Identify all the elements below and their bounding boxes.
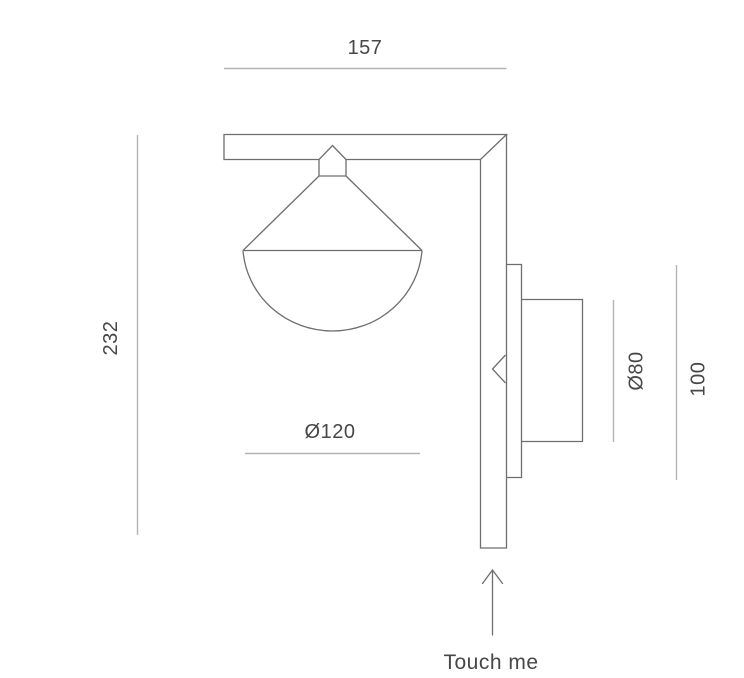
touch-arrow-shaft-and-head [483, 570, 503, 635]
touch-sensor-chevron [493, 355, 506, 383]
lamp-outline [224, 135, 583, 549]
technical-drawing-page: 157 232 Ø120 Ø80 100 Touch me [0, 0, 744, 678]
touch-arrow [483, 570, 503, 635]
lamp-glass-dome [243, 251, 422, 332]
dimension-backplate-height-label: 100 [688, 362, 710, 397]
lamp-frame-arm-and-post [224, 135, 507, 549]
lamp-cone-shade [243, 176, 422, 251]
driver-box [522, 300, 583, 442]
wall-lamp-dimension-drawing: 157 232 Ø120 Ø80 100 Touch me [0, 0, 744, 678]
dimension-driver-diameter-label: Ø80 [626, 351, 648, 390]
wall-backplate [507, 265, 522, 478]
touch-me-label: Touch me [443, 651, 538, 674]
dimension-lines [138, 69, 677, 536]
dimension-height-label: 232 [100, 321, 122, 356]
dimension-shade-diameter-label: Ø120 [305, 421, 356, 443]
dimension-width-label: 157 [348, 37, 383, 59]
lamp-canopy [319, 146, 346, 177]
